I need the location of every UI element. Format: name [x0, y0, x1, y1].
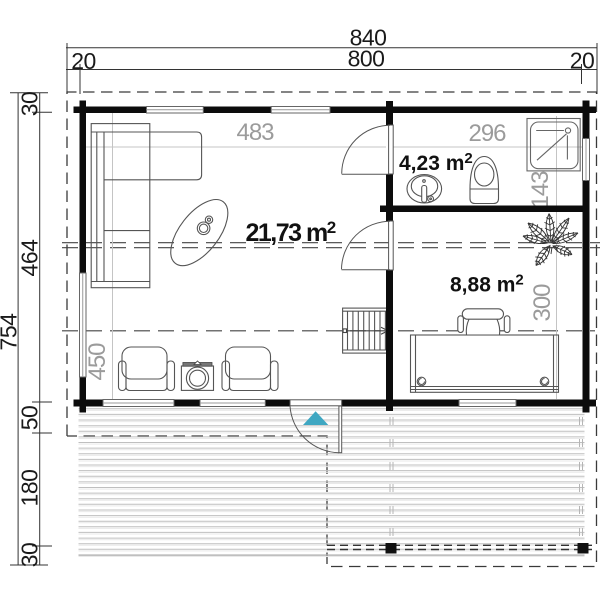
svg-text:450: 450 [84, 343, 111, 381]
svg-text:754: 754 [0, 313, 22, 351]
svg-text:464: 464 [17, 239, 43, 277]
svg-text:483: 483 [236, 119, 274, 146]
svg-text:4,23 m2: 4,23 m2 [399, 150, 473, 175]
svg-text:20: 20 [570, 48, 595, 74]
svg-text:8,88 m2: 8,88 m2 [450, 272, 524, 297]
svg-text:21,73 m2: 21,73 m2 [246, 218, 337, 247]
svg-text:300: 300 [529, 284, 556, 322]
svg-text:30: 30 [17, 543, 43, 568]
svg-text:50: 50 [17, 406, 43, 431]
svg-text:30: 30 [17, 92, 43, 117]
svg-text:180: 180 [17, 470, 43, 507]
svg-text:296: 296 [468, 120, 506, 147]
svg-text:20: 20 [71, 48, 96, 74]
svg-text:800: 800 [348, 46, 385, 72]
svg-text:143: 143 [527, 171, 554, 209]
